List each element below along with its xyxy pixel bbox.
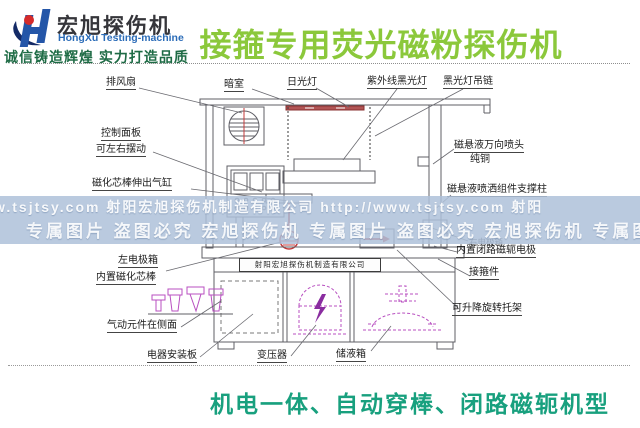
exhaust-fan-drawing [224, 107, 264, 145]
label-control-panel: 控制面板 [101, 128, 141, 141]
label-dark-room: 暗室 [224, 79, 244, 92]
footer-caption: 机电一体、自动穿棒、闭路磁轭机型 [180, 385, 640, 419]
pneumatic-components-drawing [152, 287, 223, 311]
label-nozzle: 磁悬液万向喷头 [454, 140, 524, 153]
uv-black-light-drawing [283, 159, 375, 183]
label-coupling: 接箍件 [469, 267, 499, 280]
machine-nameplate: 射阳宏旭探伤机制造有限公司 [239, 258, 381, 272]
label-transformer: 变压器 [257, 350, 287, 363]
label-core-rod-cylinder: 磁化芯棒伸出气缸 [92, 178, 172, 191]
transformer-drawing [293, 285, 347, 334]
tank-drawing [363, 286, 441, 330]
label-tank: 储液箱 [336, 349, 366, 362]
label-black-light-chain: 黑光灯吊链 [443, 76, 493, 89]
label-nozzle-copper: 纯铜 [470, 154, 490, 166]
label-daylight-lamp: 日光灯 [287, 77, 317, 90]
label-left-electrode-box: 左电极箱 [118, 255, 158, 268]
watermark-band: w.tsjtsy.com 射阳宏旭探伤机制造有限公司 http://www.ts… [0, 196, 640, 244]
watermark-notice-line: 专属图片 盗图必究 宏旭探伤机 专属图片 盗图必究 宏旭探伤机 专属图 [26, 217, 640, 242]
label-exhaust-fan: 排风扇 [106, 77, 136, 90]
daylight-lamp-drawing [286, 106, 364, 110]
label-pneumatic: 气动元件在侧面 [107, 320, 177, 333]
label-electric-plate: 电器安装板 [147, 350, 197, 363]
watermark-url-line: w.tsjtsy.com 射阳宏旭探伤机制造有限公司 http://www.ts… [0, 197, 640, 217]
label-control-panel-swing: 可左右摆动 [96, 144, 146, 157]
promo-diagram-page: 宏旭探伤机 HongXu Testing-machine 诚信铸造辉煌 实力打造… [0, 0, 640, 428]
label-left-electrode-rod: 内置磁化芯棒 [96, 272, 156, 285]
label-right-electrode-yoke: 内置闭路磁轭电极 [456, 245, 536, 258]
label-uv-black-light: 紫外线黑光灯 [367, 76, 427, 89]
label-bracket: 可升降旋转托架 [452, 303, 522, 316]
black-light-chains [288, 107, 370, 160]
